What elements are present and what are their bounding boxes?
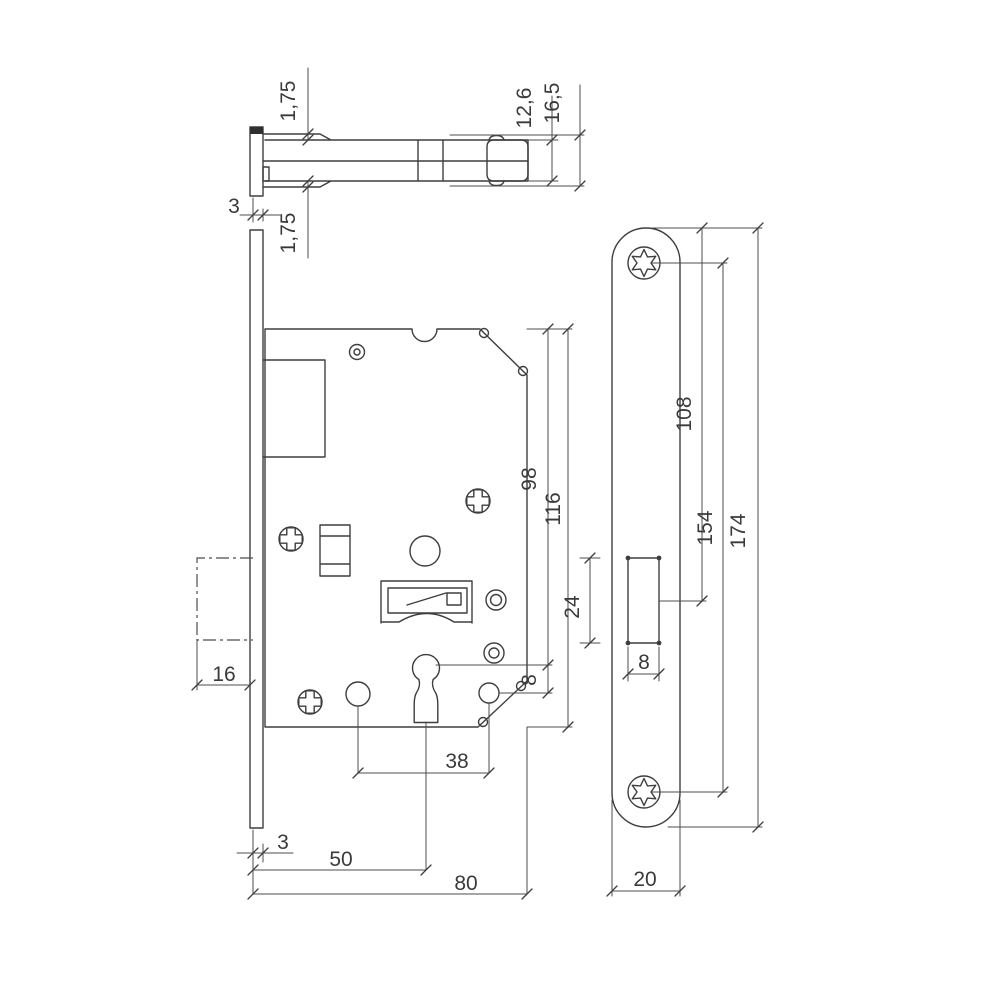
faceplate-view: 108 154 174 24 8 20 — [561, 223, 763, 896]
front-view: 16 98 116 8 38 3 50 80 — [192, 230, 573, 899]
dim-label-latch-height-outer: 16,5 — [541, 83, 564, 124]
dim-label-cutout-height: 24 — [561, 595, 584, 619]
latch-mechanism — [381, 581, 472, 623]
rivet-icon — [491, 595, 502, 606]
rivet-icon — [486, 590, 506, 610]
latch-bolt-hidden-outline — [197, 558, 253, 640]
dim-label-top-to-cutout: 108 — [673, 396, 696, 431]
phillips-screw-icon — [279, 527, 303, 551]
faceplate-front — [250, 230, 263, 828]
cutout-corner-dot — [657, 556, 662, 561]
through-hole — [479, 683, 499, 703]
front-view-ticks — [192, 324, 573, 899]
top-view: 1,75 1,75 3 12,6 16,5 — [228, 68, 585, 258]
faceplate-section — [250, 127, 263, 196]
dim-label-case-depth: 80 — [454, 872, 477, 895]
rivet-icon — [489, 648, 499, 658]
latch-cutout — [628, 558, 659, 643]
rivet-icon — [484, 643, 504, 663]
dim-label-flange-top: 1,75 — [277, 81, 300, 122]
technical-drawing-page: 1,75 1,75 3 12,6 16,5 — [0, 0, 1000, 1000]
dim-label-hole-spacing: 38 — [445, 750, 468, 773]
front-view-extension-lines — [197, 329, 572, 894]
latch-bolt-front — [263, 360, 325, 457]
spindle-hole — [410, 536, 440, 566]
keyhole — [413, 655, 440, 723]
faceplate-outline — [612, 228, 680, 827]
through-hole — [346, 682, 370, 706]
dim-label-plate-thickness-top: 3 — [228, 195, 240, 218]
faceplate-notch — [263, 167, 269, 181]
dim-label-cutout-width: 8 — [638, 651, 650, 674]
dim-label-plate-height: 174 — [727, 513, 750, 548]
dim-label-keyhole-to-hole: 8 — [518, 674, 541, 686]
lock-technical-drawing: 1,75 1,75 3 12,6 16,5 — [0, 0, 1000, 1000]
cutout-corner-dot — [626, 641, 631, 646]
dim-label-top-to-keyhole: 98 — [518, 467, 541, 490]
dim-label-screw-spacing: 154 — [694, 510, 717, 545]
dim-label-case-height: 116 — [542, 492, 565, 525]
phillips-screw-icon — [298, 690, 322, 714]
rivet-icon — [354, 349, 360, 355]
cutout-corner-dot — [657, 641, 662, 646]
dim-label-plate-thickness-front: 3 — [277, 831, 289, 854]
dim-label-backset: 50 — [329, 848, 352, 871]
lock-case-outline — [265, 329, 527, 727]
faceplate-extension-lines — [580, 228, 762, 896]
cutout-corner-dot — [626, 556, 631, 561]
dim-label-latch-protrusion: 16 — [212, 663, 235, 686]
faceplate-section-fill — [250, 127, 263, 134]
front-view-dimension-lines — [197, 329, 568, 894]
top-view-ticks — [248, 129, 585, 220]
follower-block — [320, 525, 350, 576]
dim-label-flange-bottom: 1,75 — [277, 213, 300, 254]
rivet-icon — [350, 345, 365, 360]
dim-label-latch-height-inner: 12,6 — [513, 88, 536, 129]
dim-label-plate-width: 20 — [633, 868, 656, 891]
phillips-screw-icon — [466, 489, 490, 513]
